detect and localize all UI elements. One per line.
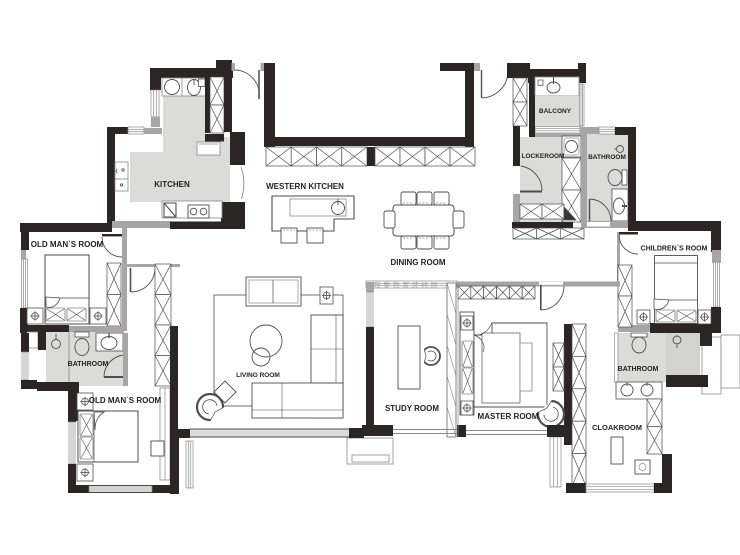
svg-text:WESTERN KITCHEN: WESTERN KITCHEN <box>266 182 344 191</box>
svg-text:STUDY ROOM: STUDY ROOM <box>385 404 439 413</box>
svg-text:LOCKEROOM: LOCKEROOM <box>522 153 565 160</box>
svg-text:DINING ROOM: DINING ROOM <box>390 258 445 267</box>
svg-text:KITCHEN: KITCHEN <box>154 180 190 189</box>
svg-text:BALCONY: BALCONY <box>539 108 572 115</box>
svg-text:我爱我家装修网: 我爱我家装修网 <box>374 281 441 290</box>
svg-text:LIVING ROOM: LIVING ROOM <box>236 372 280 379</box>
svg-text:MASTER ROOM: MASTER ROOM <box>478 412 539 421</box>
svg-text:BATHROOM: BATHROOM <box>618 366 659 373</box>
svg-text:CLOAKROOM: CLOAKROOM <box>592 423 642 432</box>
svg-text:CHILDREN`S ROOM: CHILDREN`S ROOM <box>641 246 708 253</box>
svg-text:BATHROOM: BATHROOM <box>588 154 626 161</box>
svg-text:OLD MAN`S ROOM: OLD MAN`S ROOM <box>31 240 104 249</box>
svg-text:BATHROOM: BATHROOM <box>68 361 109 368</box>
svg-text:OLD MAN`S ROOM: OLD MAN`S ROOM <box>89 396 162 405</box>
